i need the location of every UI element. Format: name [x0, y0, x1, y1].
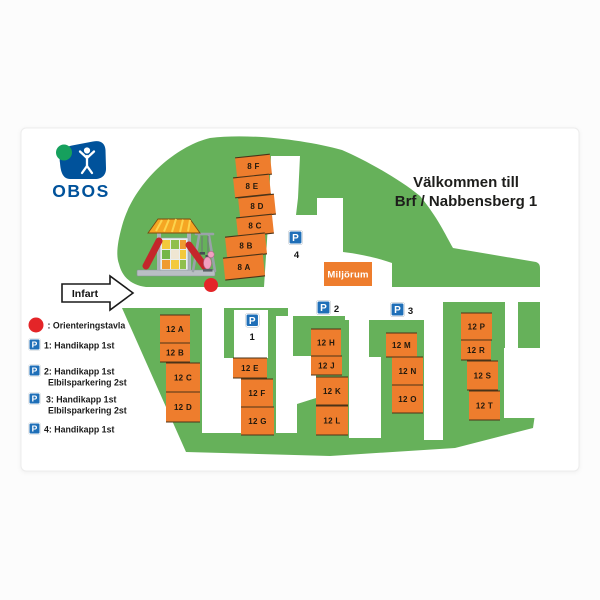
orienteringstavla-dot: [204, 278, 218, 292]
building-12H-label: 12 H: [317, 339, 335, 348]
building-12N-label: 12 N: [398, 367, 416, 376]
legend-text: 4: Handikapp 1st: [44, 424, 114, 434]
building-12F-label: 12 F: [248, 389, 265, 398]
building-12T-label: 12 T: [476, 402, 493, 411]
panel-cell: [180, 260, 186, 269]
p-icon: P: [292, 233, 299, 244]
building-12D-label: 12 D: [174, 403, 192, 412]
figure-head: [84, 147, 90, 153]
path-gap-5: [505, 302, 518, 350]
spring-rider-base: [203, 269, 213, 272]
building-12A-label: 12 A: [166, 325, 184, 334]
building-12M-label: 12 M: [392, 341, 411, 350]
spring-rider-head: [208, 251, 214, 257]
legend-text: 1: Handikapp 1st: [44, 340, 114, 350]
parking-number-1: 1: [250, 332, 256, 343]
building-12G-label: 12 G: [248, 417, 267, 426]
building-12C-label: 12 C: [174, 374, 192, 383]
miljorum: Miljörum: [324, 262, 372, 286]
building-12B-label: 12 B: [166, 349, 184, 358]
welcome-title-line1: Välkommen till: [413, 174, 519, 191]
parking-number-2: 2: [334, 304, 339, 315]
obos-logo-dot: [56, 145, 72, 161]
path-gap-4: [424, 320, 443, 440]
legend-text: 2: Handikapp 1st: [44, 366, 114, 376]
site-map: Infart Miljörum 8 F8 E8 D8 C8 B8 A12 A12…: [0, 0, 600, 600]
panel-cell: [162, 240, 170, 249]
path-upper-notch: [317, 198, 343, 254]
panel-cell: [171, 260, 179, 269]
infart-label: Infart: [72, 288, 99, 300]
building-12K-label: 12 K: [323, 387, 341, 396]
building-12S-label: 12 S: [474, 372, 492, 381]
p-icon: P: [32, 394, 38, 404]
obos-wordmark: OBOS: [52, 181, 110, 201]
building-8D-label: 8 D: [250, 202, 263, 211]
building-8E-label: 8 E: [246, 182, 259, 191]
p-icon: P: [249, 316, 256, 327]
welcome-title-line2: Brf / Nabbensberg 1: [395, 193, 538, 210]
building-12J-label: 12 J: [318, 362, 335, 371]
legend-text-line2: Elbilsparkering 2st: [48, 405, 127, 415]
p-icon: P: [32, 424, 38, 434]
red-dot-icon: [29, 318, 44, 333]
panel-cell: [180, 250, 186, 259]
path-right-pocket: [504, 348, 542, 418]
legend-text-line2: Elbilsparkering 2st: [48, 377, 127, 387]
building-12E-label: 12 E: [241, 364, 259, 373]
p-icon: P: [394, 305, 401, 316]
building-8C-label: 8 C: [248, 222, 261, 231]
building-12O-label: 12 O: [398, 395, 417, 404]
legend-text: : Orienteringstavla: [48, 321, 126, 331]
building-12R-label: 12 R: [467, 346, 485, 355]
parking-number-4: 4: [294, 250, 300, 261]
panel-cell: [171, 240, 179, 249]
panel-cell: [162, 260, 170, 269]
swing-seat: [200, 252, 206, 255]
legend-text: 3: Handikapp 1st: [46, 394, 116, 404]
panel-cell: [171, 250, 179, 259]
building-8F-label: 8 F: [247, 162, 259, 171]
parking-number-3: 3: [408, 306, 413, 317]
spring-rider: [204, 257, 212, 269]
p-icon: P: [32, 366, 38, 376]
miljorum-label: Miljörum: [327, 270, 368, 281]
p-icon: P: [320, 303, 327, 314]
building-12P-label: 12 P: [468, 323, 486, 332]
building-12L-label: 12 L: [323, 417, 340, 426]
panel-cell: [180, 240, 186, 249]
p-icon: P: [32, 340, 38, 350]
building-8A-label: 8 A: [237, 263, 250, 272]
panel-cell: [162, 250, 170, 259]
building-8B-label: 8 B: [239, 242, 252, 251]
